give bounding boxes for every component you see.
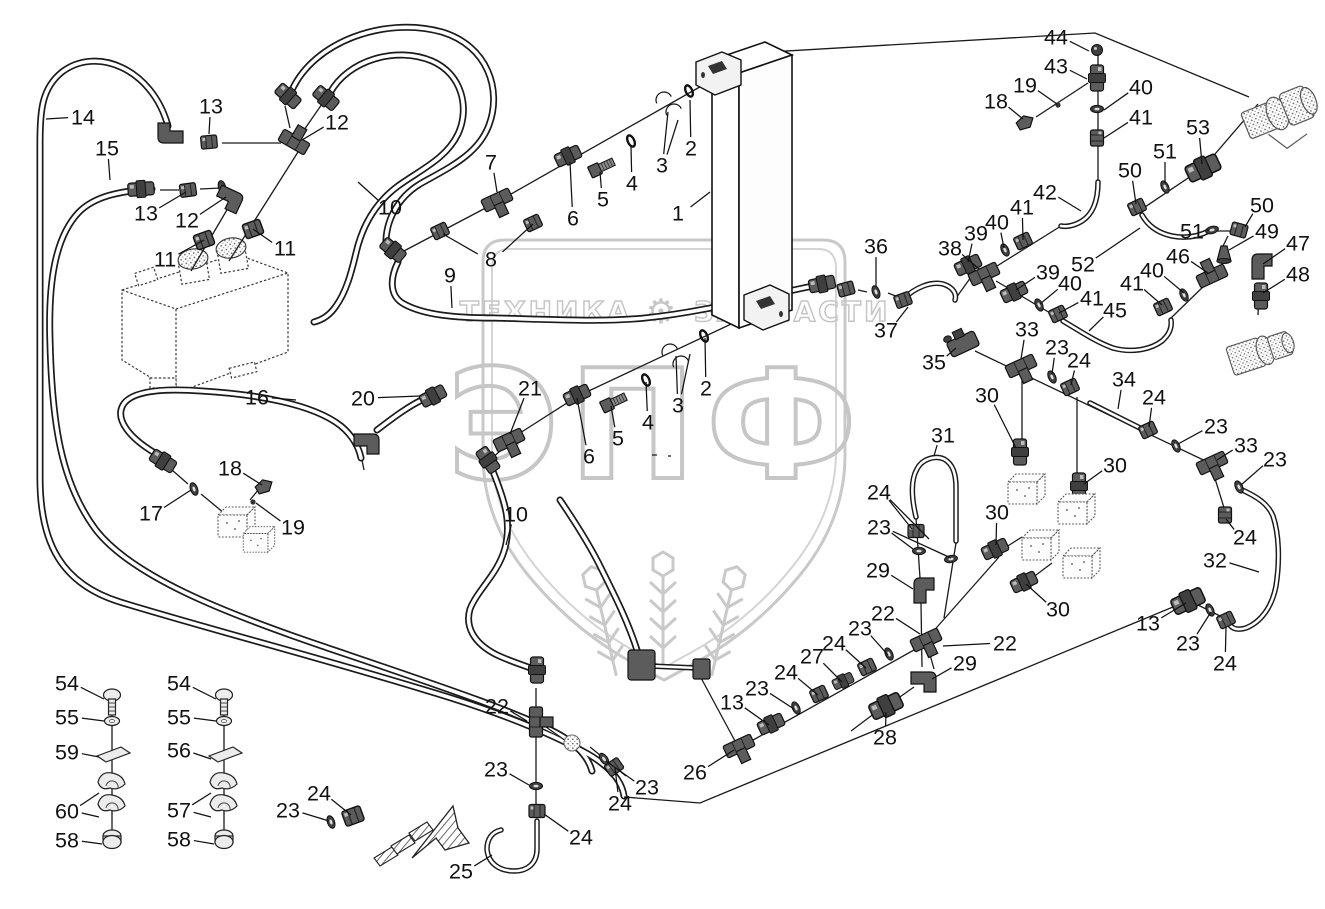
callout-45: 45 [1103,299,1127,323]
callout-10: 10 [504,503,528,527]
callout-24: 24 [1213,652,1237,676]
callout-54: 54 [55,672,79,696]
callout-23: 23 [276,799,300,823]
hydraulic-parts-diagram: ЭПФ ТЕХНИКА ⚙ ЗАПЧАСТИ [0,0,1325,909]
callout-60: 60 [55,800,79,824]
callout-39: 39 [1036,261,1060,285]
callout-23: 23 [1263,448,1287,472]
callout-12: 12 [325,111,349,135]
leader-line [82,813,99,817]
callout-46: 46 [1166,245,1190,269]
callout-24: 24 [307,782,331,806]
leader-line [503,224,533,252]
leader-line [256,503,280,521]
callout-4: 4 [642,411,654,435]
callout-24: 24 [774,661,798,685]
leader-line [378,396,420,398]
leader-line [302,813,329,821]
leader-line [1104,93,1128,110]
callout-30: 30 [1103,454,1127,478]
leader-line [1164,276,1184,293]
leader-line [1070,41,1089,51]
pump-top-right [1239,82,1325,159]
leader-line [243,473,262,485]
callout-23: 23 [1204,415,1228,439]
elbow-block [628,650,655,680]
callout-32: 32 [1203,549,1227,573]
leader-line [823,663,842,682]
callout-41: 41 [1010,196,1034,220]
callout-40: 40 [985,211,1009,235]
leader-line [1229,236,1254,250]
callout-53: 53 [1186,116,1210,140]
callout-24: 24 [1067,349,1091,373]
oil-cooler [696,42,792,330]
leader-line [1058,197,1081,211]
leader-line [81,687,104,699]
callout-26: 26 [683,761,707,785]
callout-52: 52 [1071,253,1095,277]
leader-line [667,120,678,155]
callout-29: 29 [866,559,890,583]
callout-20: 20 [351,387,375,411]
leader-line [770,693,794,709]
leader-line [1104,122,1128,138]
leader-line [194,812,211,817]
leader-line [896,618,920,634]
callout-48: 48 [1286,263,1310,287]
leader-line [46,118,68,119]
leader-line [631,146,632,172]
clamp-stack-left [97,689,130,849]
leader-line [889,500,912,529]
leader-line [690,100,691,137]
leader-line [745,708,769,725]
leader-line [1178,431,1202,444]
leader-line [358,182,378,200]
watermark-shield: ЭПФ ТЕХНИКА ⚙ ЗАПЧАСТИ [447,240,890,680]
callout-29: 29 [953,652,977,676]
callout-5: 5 [597,188,609,212]
leader-line [544,814,568,831]
pump-right [1226,327,1298,375]
callout-35: 35 [922,351,946,375]
callout-24: 24 [867,481,891,505]
leader-line [159,192,186,208]
watermark-brand: ЭПФ [447,337,867,514]
callout-22: 22 [485,695,509,719]
leader-line [192,793,211,805]
leader-line [443,234,478,254]
wheat-ear-icon [650,552,676,664]
leader-line [331,799,351,815]
callout-24: 24 [822,632,846,656]
callout-14: 14 [71,106,95,130]
leader-line [1089,317,1103,331]
callout-6: 6 [583,445,595,469]
callout-51: 51 [1180,220,1204,244]
callout-22: 22 [871,602,895,626]
leader-line [1229,563,1259,572]
callout-50: 50 [1250,194,1274,218]
callout-50: 50 [1118,159,1142,183]
leader-line [1144,290,1162,305]
leader-line [891,575,913,589]
callout-33: 33 [1015,318,1039,342]
leader-line [1052,358,1054,374]
callout-23: 23 [1176,632,1200,656]
callout-13: 13 [199,95,223,119]
callout-49: 49 [1255,220,1279,244]
callout-22: 22 [993,632,1017,656]
leader-line [108,159,110,180]
leader-line [193,687,216,699]
callout-34: 34 [1112,368,1136,392]
callout-24: 24 [569,826,593,850]
callout-23: 23 [1045,336,1069,360]
stipple-ball [564,735,580,751]
parts-diagram-page: ЭПФ ТЕХНИКА ⚙ ЗАПЧАСТИ [0,0,1325,909]
leader-line [691,192,710,207]
callout-56: 56 [167,739,191,763]
callout-30: 30 [975,384,999,408]
callout-5: 5 [612,427,624,451]
leader-line [1084,471,1102,484]
callout-2: 2 [700,377,712,401]
callout-30: 30 [985,501,1009,525]
leader-line [996,523,997,545]
callout-40: 40 [1129,76,1153,100]
callout-57: 57 [167,799,191,823]
leader-line [80,793,99,806]
callout-11: 11 [274,237,296,261]
leader-line [451,286,452,308]
callout-59: 59 [55,741,79,765]
callout-30: 30 [1046,598,1070,622]
leader-line [1040,289,1058,304]
callout-58: 58 [55,829,79,853]
direction-arrow-icon [374,806,469,866]
callout-24: 24 [1233,526,1257,550]
callout-19: 19 [281,516,305,540]
leader-line [1241,466,1263,485]
leader-line [871,636,888,655]
callout-27: 27 [800,645,824,669]
callout-7: 7 [485,151,497,175]
callout-51: 51 [1153,140,1177,164]
callout-43: 43 [1044,55,1068,79]
leader-line [209,117,210,134]
callout-47: 47 [1286,232,1310,256]
callout-18: 18 [984,90,1008,114]
callout-10: 10 [378,196,402,220]
leader-line [994,405,1016,448]
callout-41: 41 [1120,272,1144,296]
leader-line [1038,91,1057,104]
callout-3: 3 [672,394,684,418]
callout-15: 15 [95,137,119,161]
leader-line [164,490,191,508]
callout-42: 42 [1033,181,1057,205]
callout-41: 41 [1080,287,1104,311]
callout-33: 33 [1234,434,1258,458]
callout-23: 23 [867,516,891,540]
leader-line [1021,340,1024,359]
leader-line [82,841,102,844]
callout-23: 23 [745,677,769,701]
callout-54: 54 [167,672,191,696]
callout-13: 13 [1136,612,1160,636]
callout-58: 58 [167,828,191,852]
callout-13: 13 [720,691,744,715]
leader-line [846,650,866,668]
callout-19: 19 [1013,74,1037,98]
leader-line [896,307,908,322]
leader-line [943,644,990,646]
leader-line [1225,627,1226,652]
callout-23: 23 [484,758,508,782]
clamp-stack-right [209,689,242,849]
callout-13: 13 [134,202,158,226]
oil-tank [122,236,288,393]
callout-8: 8 [485,248,497,272]
callout-18: 18 [218,457,242,481]
leader-line [1008,107,1023,119]
callout-25: 25 [449,860,473,884]
callout-36: 36 [864,235,888,259]
leader-line [1026,584,1046,602]
leader-line [194,718,216,721]
callout-23: 23 [635,776,659,800]
leader-line [509,774,529,785]
callout-2: 2 [685,137,697,161]
callout-38: 38 [938,237,962,261]
callout-21: 21 [518,377,542,401]
callout-55: 55 [55,706,79,730]
leader-line [1070,70,1087,79]
callout-24: 24 [1142,386,1166,410]
callout-31: 31 [931,424,955,448]
leader-line [82,718,104,721]
leader-line [664,112,668,154]
callout-55: 55 [167,706,191,730]
callout-11: 11 [154,248,176,272]
leader-line [200,197,226,214]
callout-4: 4 [626,172,638,196]
leader-line [798,678,818,695]
callout-1: 1 [672,202,684,226]
callout-6: 6 [567,207,579,231]
leader-line [494,173,497,192]
callout-17: 17 [139,502,163,526]
leader-line [708,750,734,767]
leader-line [82,754,99,757]
callout-23: 23 [848,617,872,641]
callout-3: 3 [656,154,668,178]
leader-line [194,841,214,844]
callout-12: 12 [175,209,199,233]
callout-41: 41 [1129,106,1153,130]
callout-44: 44 [1044,26,1068,50]
leader-line [1118,390,1121,409]
leader-line [1022,218,1023,240]
leader-line [570,162,572,207]
leader-line [1096,228,1140,258]
callout-28: 28 [873,726,897,750]
callout-9: 9 [444,264,456,288]
callout-16: 16 [245,386,269,410]
leader-line [705,338,706,377]
callout-24: 24 [608,792,632,816]
callout-37: 37 [874,319,898,343]
